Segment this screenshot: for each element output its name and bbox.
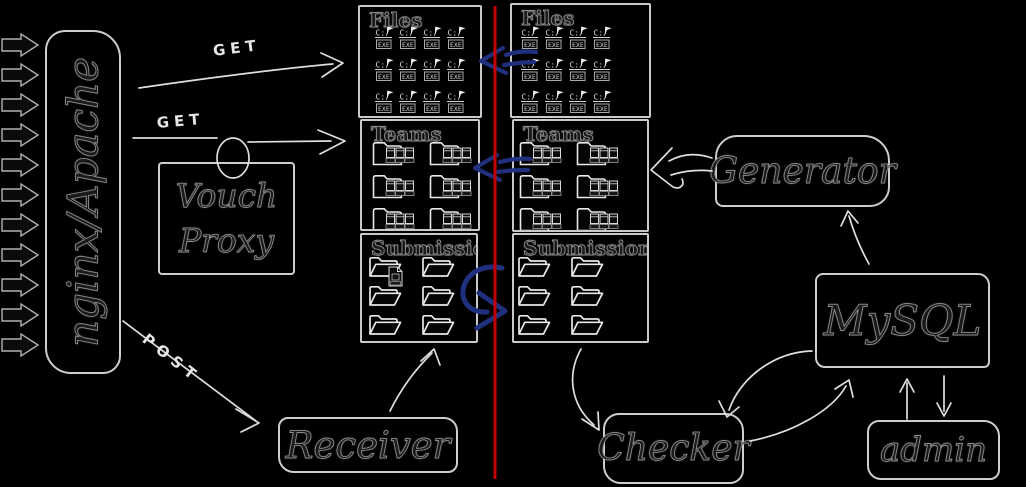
exe-icon: C:/ EXE xyxy=(568,26,591,55)
teamfolder-icon xyxy=(372,171,415,204)
get-label-top: GET xyxy=(212,36,262,60)
svg-text:EXE: EXE xyxy=(548,41,560,49)
svg-text:EXE: EXE xyxy=(450,105,462,113)
teamfolder-icon xyxy=(576,171,619,204)
subfolder-icon xyxy=(517,283,551,311)
svg-text:EXE: EXE xyxy=(596,73,608,81)
panel-left-files: Files C:/ EXE C:/ EXE C:/ EXE C:/ EXE xyxy=(358,5,482,118)
left-files-icon-grid: C:/ EXE C:/ EXE C:/ EXE C:/ EXE C:/ EXE xyxy=(374,26,469,118)
exe-icon: C:/ EXE xyxy=(398,26,421,55)
exe-icon: C:/ EXE xyxy=(568,90,591,118)
exe-icon: C:/ EXE xyxy=(398,58,421,87)
svg-text:EXE: EXE xyxy=(596,41,608,49)
gateway-label: nginx/Apache xyxy=(59,57,108,347)
svg-text:C:/: C:/ xyxy=(546,61,561,70)
svg-text:EXE: EXE xyxy=(402,41,414,49)
node-checker: Checker xyxy=(603,413,744,484)
get-label-bottom: GET xyxy=(156,110,205,132)
svg-text:C:/: C:/ xyxy=(424,61,439,70)
panel-left-submissions: Submissions xyxy=(360,233,478,343)
exe-file-badge-icon xyxy=(388,266,403,291)
exe-icon: C:/ EXE xyxy=(422,90,445,118)
svg-text:C:/: C:/ xyxy=(522,29,537,38)
svg-text:EXE: EXE xyxy=(596,105,608,113)
node-generator: Generator xyxy=(715,135,890,207)
panel-left-teams: Teams xyxy=(360,119,480,231)
teamfolder-icon xyxy=(519,138,562,171)
subfolder-icon xyxy=(517,312,551,340)
svg-text:EXE: EXE xyxy=(572,41,584,49)
post-label: POST xyxy=(139,330,204,387)
svg-text:EXE: EXE xyxy=(548,105,560,113)
exe-icon: C:/ EXE xyxy=(446,90,469,118)
receiver-label: Receiver xyxy=(286,424,451,467)
svg-text:C:/: C:/ xyxy=(570,93,585,102)
svg-text:C:/: C:/ xyxy=(448,29,463,38)
vouch-label-line1: Vouch xyxy=(176,174,278,219)
generator-label: Generator xyxy=(709,151,896,192)
svg-text:EXE: EXE xyxy=(450,73,462,81)
arrow-mysql-to-admin-icon xyxy=(937,376,951,416)
arrow-receiver-to-submissions-icon xyxy=(390,349,440,411)
architecture-diagram: nginx/Apache Vouch Proxy Receiver Genera… xyxy=(0,0,1026,487)
exe-icon: C:/ EXE xyxy=(520,58,543,87)
exe-icon: C:/ EXE xyxy=(592,26,615,55)
teamfolder-icon xyxy=(429,171,472,204)
svg-text:EXE: EXE xyxy=(450,41,462,49)
exe-icon: C:/ EXE xyxy=(446,26,469,55)
svg-text:C:/: C:/ xyxy=(594,29,609,38)
svg-text:EXE: EXE xyxy=(426,105,438,113)
subfolder-icon xyxy=(421,312,455,340)
arrow-mysql-to-generator-icon xyxy=(841,211,869,264)
right-submissions-icon-grid xyxy=(517,254,604,340)
svg-text:C:/: C:/ xyxy=(594,93,609,102)
teamfolder-icon xyxy=(519,204,562,232)
svg-text:EXE: EXE xyxy=(378,41,390,49)
exe-icon: C:/ EXE xyxy=(544,58,567,87)
svg-text:C:/: C:/ xyxy=(546,93,561,102)
svg-text:C:/: C:/ xyxy=(522,61,537,70)
teamfolder-icon xyxy=(576,138,619,171)
svg-text:C:/: C:/ xyxy=(594,61,609,70)
teamfolder-icon xyxy=(576,204,619,232)
panel-right-files: Files C:/ EXE C:/ EXE C:/ EXE C:/ EXE xyxy=(510,3,651,118)
svg-text:C:/: C:/ xyxy=(448,61,463,70)
svg-text:EXE: EXE xyxy=(524,105,536,113)
subfolder-icon xyxy=(368,254,402,282)
svg-text:C:/: C:/ xyxy=(570,61,585,70)
subfolder-icon xyxy=(570,312,604,340)
svg-text:EXE: EXE xyxy=(524,41,536,49)
arrow-mysql-to-checker-icon xyxy=(719,351,812,417)
exe-icon: C:/ EXE xyxy=(446,58,469,87)
panel-right-teams: Teams xyxy=(512,119,649,232)
vouch-label-line2: Proxy xyxy=(179,219,274,264)
arrow-checker-to-mysql-icon xyxy=(750,380,853,441)
node-gateway: nginx/Apache xyxy=(45,30,121,374)
teamfolder-icon xyxy=(429,204,472,231)
svg-text:EXE: EXE xyxy=(426,73,438,81)
exe-icon: C:/ EXE xyxy=(520,90,543,118)
svg-text:C:/: C:/ xyxy=(546,29,561,38)
exe-icon: C:/ EXE xyxy=(568,58,591,87)
arrow-generator-to-teams-icon xyxy=(651,148,712,188)
node-admin: admin xyxy=(867,420,1000,480)
svg-text:C:/: C:/ xyxy=(376,61,391,70)
svg-text:C:/: C:/ xyxy=(522,93,537,102)
svg-text:C:/: C:/ xyxy=(570,29,585,38)
right-files-icon-grid: C:/ EXE C:/ EXE C:/ EXE C:/ EXE C:/ EXE xyxy=(520,26,615,118)
arrow-submissions-to-checker-icon xyxy=(573,349,599,430)
subfolder-icon xyxy=(570,283,604,311)
svg-text:C:/: C:/ xyxy=(400,61,415,70)
node-receiver: Receiver xyxy=(278,417,458,473)
node-vouch-proxy: Vouch Proxy xyxy=(158,162,295,275)
exe-icon: C:/ EXE xyxy=(592,90,615,118)
teamfolder-icon xyxy=(429,138,472,171)
exe-icon: C:/ EXE xyxy=(520,26,543,55)
svg-text:C:/: C:/ xyxy=(400,93,415,102)
subfolder-icon xyxy=(368,312,402,340)
arrow-get-top-icon xyxy=(139,53,343,88)
svg-text:EXE: EXE xyxy=(524,73,536,81)
svg-text:EXE: EXE xyxy=(572,73,584,81)
svg-text:C:/: C:/ xyxy=(400,29,415,38)
subfolder-icon xyxy=(570,254,604,282)
exe-icon: C:/ EXE xyxy=(374,90,397,118)
svg-text:EXE: EXE xyxy=(378,105,390,113)
svg-text:EXE: EXE xyxy=(572,105,584,113)
right-teams-icon-grid xyxy=(519,138,619,232)
exe-icon: C:/ EXE xyxy=(398,90,421,118)
svg-text:C:/: C:/ xyxy=(376,93,391,102)
svg-text:C:/: C:/ xyxy=(448,93,463,102)
exe-icon: C:/ EXE xyxy=(374,58,397,87)
svg-text:EXE: EXE xyxy=(426,41,438,49)
left-teams-icon-grid xyxy=(372,138,472,231)
svg-text:EXE: EXE xyxy=(402,73,414,81)
left-submissions-icon-grid xyxy=(368,254,455,340)
exe-icon: C:/ EXE xyxy=(374,26,397,55)
svg-text:EXE: EXE xyxy=(548,73,560,81)
teamfolder-icon xyxy=(519,171,562,204)
exe-icon: C:/ EXE xyxy=(544,90,567,118)
subfolder-icon xyxy=(517,254,551,282)
svg-text:C:/: C:/ xyxy=(376,29,391,38)
teamfolder-icon xyxy=(372,138,415,171)
subfolder-icon xyxy=(421,283,455,311)
teamfolder-icon xyxy=(372,204,415,231)
incoming-traffic-arrows-icon xyxy=(2,34,38,356)
svg-text:C:/: C:/ xyxy=(424,93,439,102)
node-mysql: MySQL xyxy=(815,273,990,368)
checker-label: Checker xyxy=(597,428,750,469)
admin-label: admin xyxy=(880,430,987,470)
exe-icon: C:/ EXE xyxy=(592,58,615,87)
exe-icon: C:/ EXE xyxy=(422,26,445,55)
svg-text:C:/: C:/ xyxy=(424,29,439,38)
arrow-admin-to-mysql-icon xyxy=(900,379,914,419)
mysql-label: MySQL xyxy=(824,296,982,345)
subfolder-icon xyxy=(421,254,455,282)
svg-text:EXE: EXE xyxy=(402,105,414,113)
exe-icon: C:/ EXE xyxy=(544,26,567,55)
svg-text:EXE: EXE xyxy=(378,73,390,81)
panel-right-submissions: Submissions xyxy=(512,233,649,343)
exe-icon: C:/ EXE xyxy=(422,58,445,87)
